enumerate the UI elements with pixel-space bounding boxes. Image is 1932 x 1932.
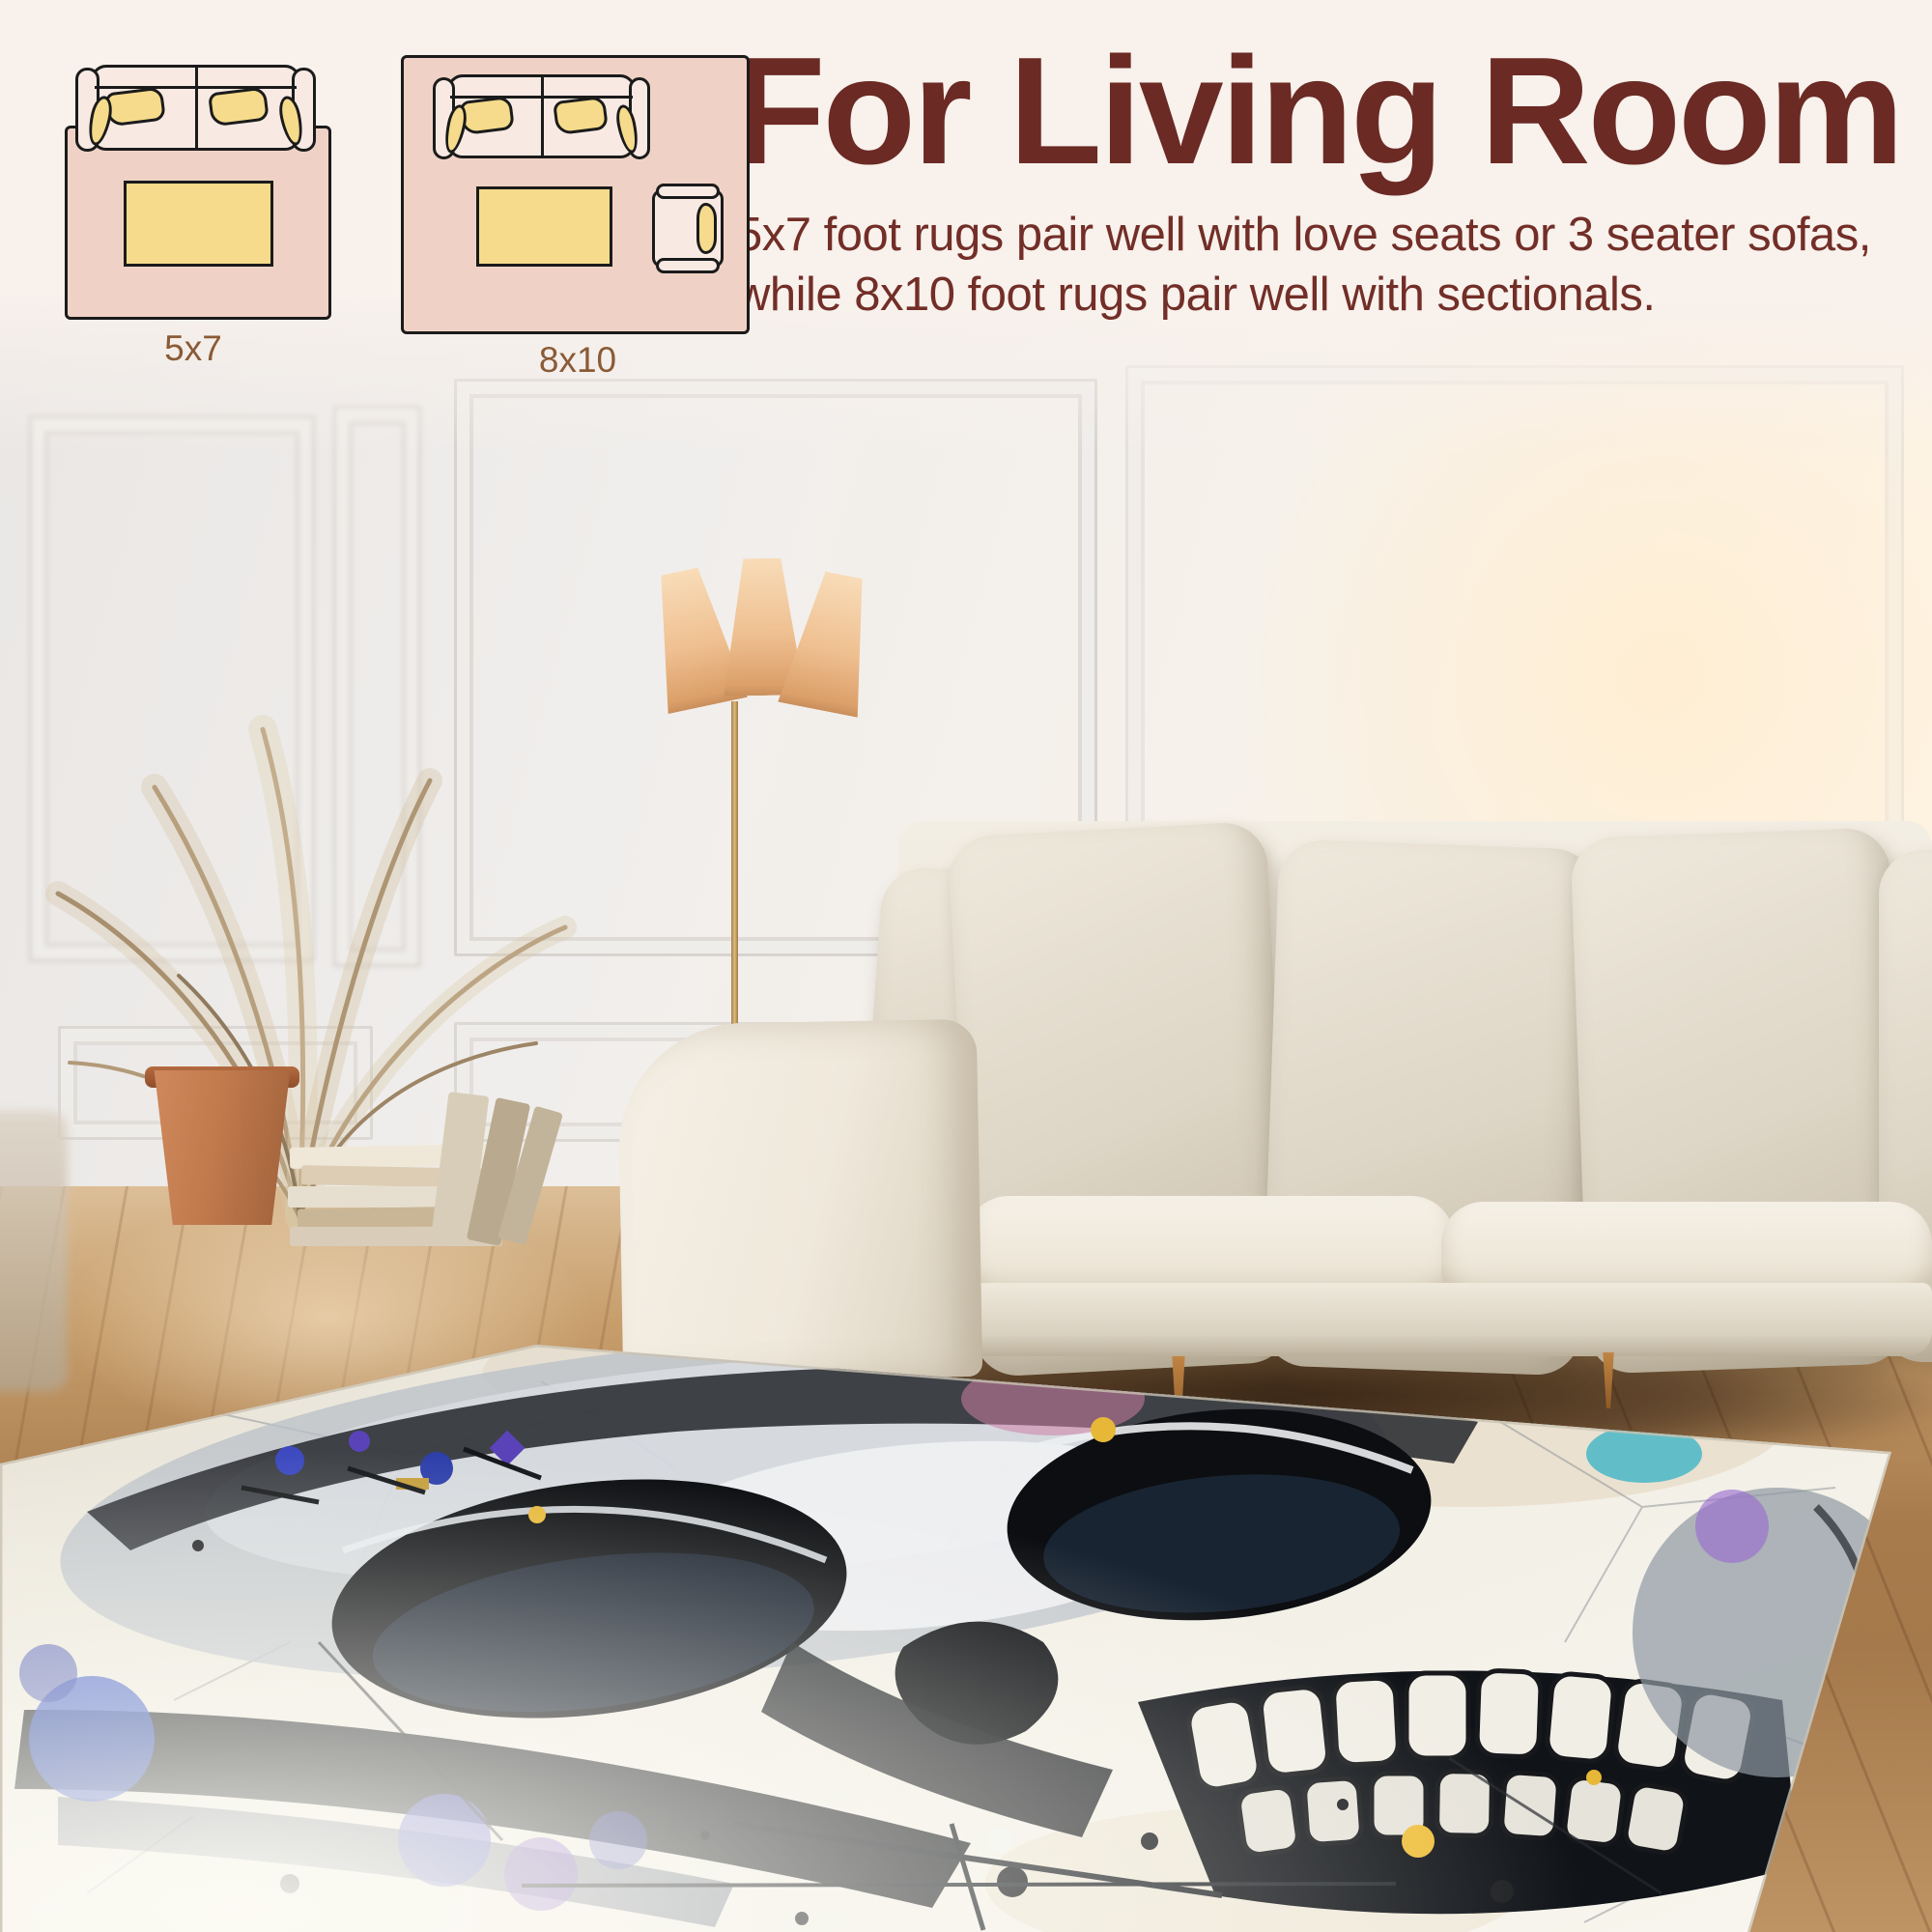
size-guide-description: 5x7 foot rugs pair well with love seats … [736,205,1886,325]
coffee-table-icon [476,186,612,267]
sofa-cushion-divider [195,68,198,151]
page-title: For Living Room [732,35,1911,187]
diagram-label-5x7: 5x7 [126,328,261,369]
diagram-label-8x10: 8x10 [500,340,655,381]
sofa-cushion-divider [541,77,544,158]
coffee-table-icon [124,181,273,267]
pillow-icon [459,96,515,135]
pillow-icon [553,96,609,135]
sofa-top-view-icon [433,74,650,162]
armchair-arm [656,258,721,273]
info-band: For Living Room 5x7 foot rugs pair well … [0,0,1932,454]
product-marketing-image: For Living Room 5x7 foot rugs pair well … [0,0,1932,1932]
watercolor-skull-rug [0,1285,1932,1932]
armchair-cushion [696,203,717,255]
armchair-top-view-icon [652,184,724,273]
armchair-arm [656,184,721,199]
loveseat-top-view-icon [75,65,316,155]
floor-lamp-shades [653,558,885,732]
floor-lamp-pole [731,701,738,1039]
